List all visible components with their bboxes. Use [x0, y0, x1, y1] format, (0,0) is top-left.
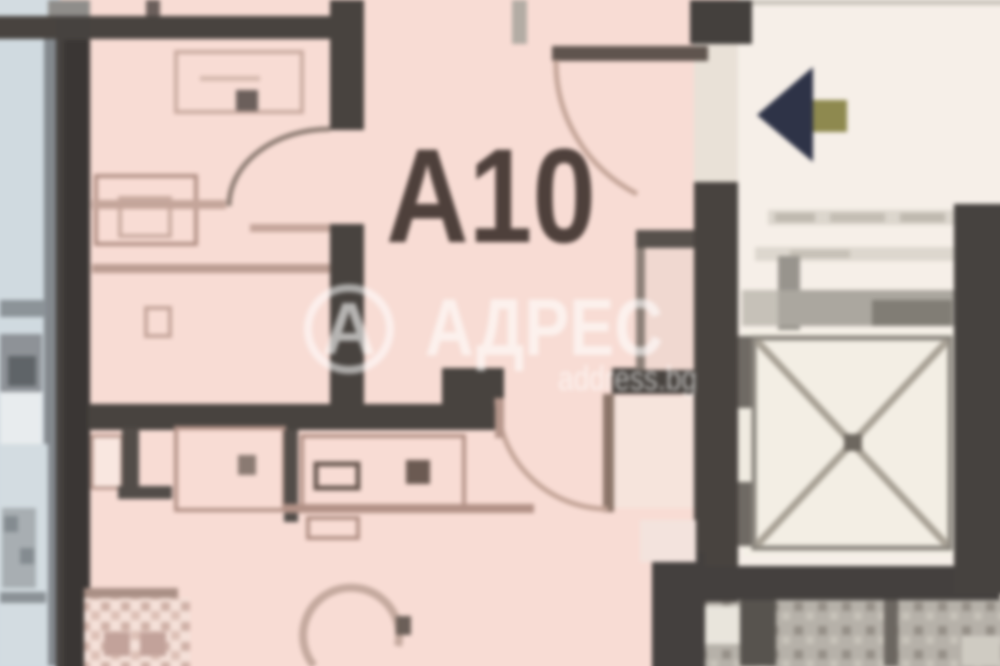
svg-text:A10: A10: [386, 122, 596, 271]
svg-text:А: А: [322, 287, 375, 370]
svg-text:address.bg: address.bg: [558, 360, 697, 398]
